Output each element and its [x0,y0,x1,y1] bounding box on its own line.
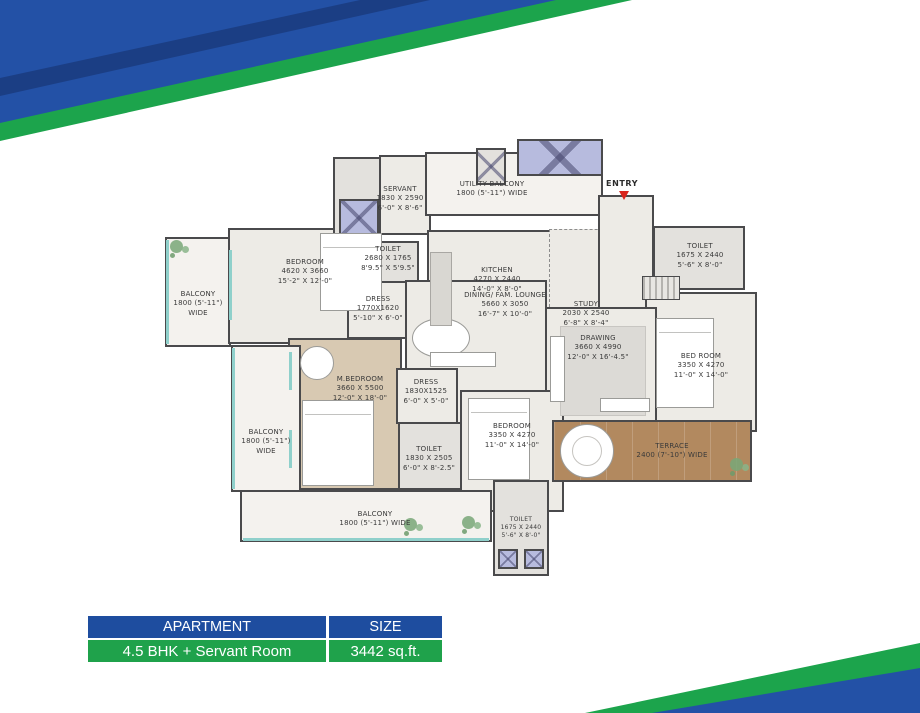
bed-master [302,400,374,486]
bottom-banner-green-stripe [585,643,920,713]
entry-arrow-icon [619,191,629,200]
floor-plan-page: SERVANT1830 X 25906'-0" X 8'-6" UTILITY … [0,0,920,713]
bed-pillow [659,321,711,333]
dining-sofa [430,352,496,367]
window-balcony-mid-left [232,348,235,489]
label-toilet-common: TOILET2680 X 17658'9.5" X 5'9.5" [348,245,428,273]
stairs [642,276,680,300]
plant-icon [462,516,475,529]
label-toilet-bottom: TOILET1675 X 24405'-6" X 8'-0" [492,516,550,540]
bottom-banner-blue-band [652,668,920,713]
label-terrace: TERRACE2400 (7'-10") WIDE [610,442,734,461]
label-balcony-top-left: BALCONY1800 (5'-11")WIDE [167,290,229,318]
toilet-bottom-shaft-1 [498,549,518,569]
terrace-tub-inner [572,436,602,466]
spec-table-value-row: 4.5 BHK + Servant Room 3442 sq.ft. [88,640,442,662]
label-dining: DINING/ FAM. LOUNGE5660 X 305016'-7" X 1… [432,291,578,319]
top-banner-dark-streak [0,0,430,96]
window-balcony-bottom [243,538,489,541]
spec-table: APARTMENT SIZE 4.5 BHK + Servant Room 34… [88,616,442,664]
toilet-bottom-shaft-2 [524,549,544,569]
top-banner-blue-band [0,0,556,123]
spec-table-header-row: APARTMENT SIZE [88,616,442,638]
plant-icon [170,240,183,253]
label-drawing: DRAWING3660 X 499012'-0" X 16'-4.5" [548,334,648,362]
label-dress-common: DRESS1770X16205'-10" X 6'-0" [341,295,415,323]
spec-value-size: 3442 sq.ft. [329,640,442,662]
label-bedroom-bottom: BEDROOM3350 X 427011'-0" X 14'-0" [460,422,564,450]
label-toilet-master: TOILET1830 X 25056'-0" X 8'-2.5" [394,445,464,473]
entry-label: ENTRY [606,179,638,188]
label-bedroom-right: BED ROOM3350 X 427011'-0" X 14'-0" [651,352,751,380]
spec-value-apartment: 4.5 BHK + Servant Room [88,640,326,662]
window-mbedroom-1 [289,352,292,390]
lift [517,139,603,176]
bed-pillow [305,403,371,415]
label-toilet-top-right: TOILET1675 X 24405'-6" X 8'-0" [660,242,740,270]
label-dress-master: DRESS1830X15256'-0" X 5'-0" [393,378,459,406]
top-banner-green-stripe [0,0,632,141]
label-balcony-bottom: BALCONY1800 (5'-11") WIDE [305,510,445,529]
spec-header-size: SIZE [329,616,442,638]
label-balcony-mid-left: BALCONY1800 (5'-11")WIDE [235,428,297,456]
bed-pillow [471,401,527,413]
window-bedroom-top-left [229,250,232,320]
drawing-sofa-bottom [600,398,650,412]
spec-header-apartment: APARTMENT [88,616,326,638]
label-utility-balcony: UTILITY BALCONY1800 (5'-11") WIDE [412,180,572,199]
label-bedroom-top-left: BEDROOM4620 X 366015'-2" X 12'-0" [255,258,355,286]
